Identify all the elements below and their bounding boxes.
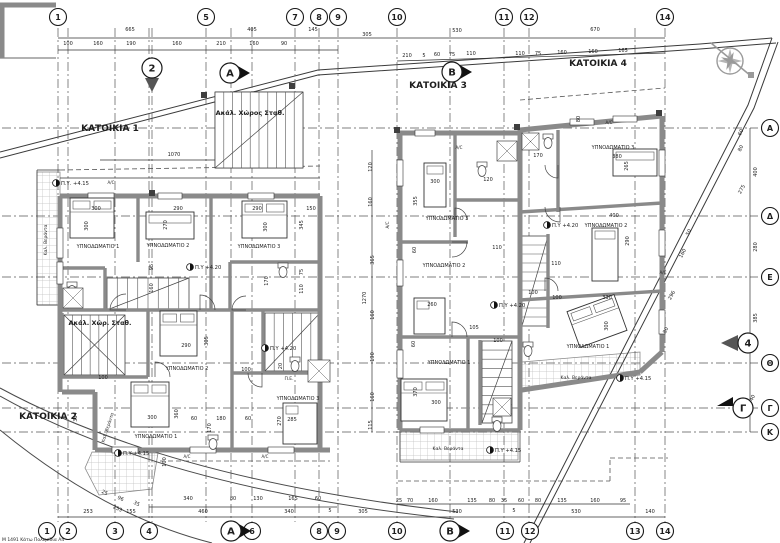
section-label: 2 [149,64,156,75]
section-label: B [446,527,454,538]
grid-bubble-label: 13 [629,527,640,536]
room-label: Καλ. Βεράντα [99,412,115,444]
door-swing [452,242,467,257]
dimension-text: 1070 [168,152,181,158]
dimension-text: 100 [241,367,251,373]
dimension-text: 190 [126,41,136,47]
window [570,119,594,125]
tiled-veranda [400,432,518,460]
dimension-text: 210 [216,41,226,47]
section-arrow [145,78,159,92]
dimension-text: 275 [737,184,747,195]
dimension-text: 110 [299,284,305,294]
door-swing [232,296,246,310]
grid-bubble-label: 10 [391,13,403,22]
bed [70,198,114,238]
dimension-text: 180 [216,416,226,422]
dimension-text: 160 [368,197,374,207]
room-label: Α/C [606,120,613,125]
wc-fixture [290,357,300,372]
bed [424,163,446,207]
pillow [149,215,191,223]
column [201,92,207,98]
bed [146,212,194,239]
pillow [427,166,443,174]
dimension-text: 80 [737,144,745,152]
dimension-text: 253 [112,504,123,513]
wc-bowl [524,346,532,357]
room-label: Ακάλ. Χώρ. Σταθ. [69,319,132,327]
room-label: Καλ. Βεράντα [433,445,464,452]
dimension-text: 130 [253,496,263,502]
pillow [73,201,90,209]
dimension-text: 160 [678,248,688,259]
interior-wall [520,203,662,212]
dimension-text: 90 [281,41,287,47]
section-label: A [227,527,235,538]
dimension-text: 300 [84,221,90,231]
dimension-text: 160 [249,41,259,47]
dimension-text: 300 [431,400,441,406]
level-marker [262,345,269,352]
level-marker [187,264,194,271]
room-label: ΥΠΝΟΔΩΜΑΤΙΟ 3 [276,396,320,402]
dimension-text: 100 [63,41,73,47]
dimension-text: 670 [590,27,600,33]
room-label: ΥΠΝΟΔΩΜΑΤΙΟ 2 [584,223,628,229]
dimension-text: 60 [412,247,418,253]
section-arrow [717,397,733,406]
dimension-text: 340 [284,509,294,515]
window [248,193,274,199]
window [268,447,294,453]
room-label: Ακάλ. Χώρος Σταθ. [216,109,285,117]
dimension-text: 160 [590,498,600,504]
section-marker-4 [721,333,758,353]
dimension-text: 160 [149,283,155,293]
dimension-text: 110 [492,245,502,251]
dimension-text: 60 [737,128,745,136]
dimension-text: 100 [98,375,108,381]
dimension-text: 405 [247,27,257,33]
dimension-text: 530 [571,509,581,515]
grid-bubble-label: 8 [316,13,322,22]
room-label: Α/C [660,270,667,275]
dimension-text: 5 [422,53,425,59]
dimension-text: 105 [469,325,479,331]
dimension-text: 360 [174,409,180,419]
dimension-text: 75 [449,52,455,58]
stair [522,236,548,326]
dimension-text: 365 [370,255,376,265]
grid-bubble-label: 11 [498,13,510,22]
window [57,262,63,284]
room-label: Καλ. Βεράντα [42,224,49,255]
shower [522,133,539,150]
dimension-text: 370 [413,387,419,397]
room-label: ΥΠΝΟΔΩΜΑΤΙΟ 2 [146,243,190,249]
dimension-text: 60 [191,416,197,422]
room-label: ΥΠΝΟΔΩΜΑΤΙΟ 1 [427,360,471,366]
grid-bubble-label: K [767,428,774,437]
dimension-text: 165 [618,48,628,54]
dimension-text: 270 [163,220,169,230]
door-swing [200,295,215,310]
grid-bubble-label: 10 [391,527,403,536]
room-label: Α/C [456,145,463,150]
dimension-text: 115 [368,420,374,430]
dimension-text: 60 [411,341,417,347]
dimension-text: 5 [328,508,331,514]
level-text: Π.Υ +4.20 [552,223,578,229]
dimension-text: 355 [413,196,419,206]
grid-bubble-label: 11 [499,527,511,536]
grid-bubble-label: 8 [316,527,322,536]
wc-fixture [477,162,487,177]
dimension-text: 80 [535,498,541,504]
dimension-text: 190 [370,352,376,362]
dimension-text: 100 [493,338,503,344]
pillow [267,204,285,212]
level-text: Π.Υ +4.20 [270,346,296,352]
dimension-text: 60 [518,498,524,504]
pillow [163,314,177,322]
exterior-wall [640,352,662,372]
room-label: Α/C [385,221,390,228]
room-label: Α/C [108,180,115,185]
pillow [134,385,148,393]
house-title: ΚΑΤΟΙΚΙΑ 2 [19,412,77,422]
window [659,230,665,256]
grid-bubble-label: 3 [112,527,118,536]
level-marker [487,447,494,454]
pillow [426,382,444,390]
grid-bubble-label: Θ [767,359,774,368]
wc-bowl [209,439,217,450]
window [415,130,435,136]
column [289,83,295,89]
floorplan-page: 6654051453055306701001601901602101609021… [0,0,780,543]
section-label: B [448,68,456,79]
dimension-text: 296 [667,290,677,301]
dimension-text: 330 [602,295,612,301]
dimension-text: 1270 [362,292,368,305]
shower [308,360,330,382]
dimension-text: 270 [277,416,283,426]
dimension-text: 135 [467,498,477,504]
dimension-text: 96 [116,495,124,503]
window [397,260,403,286]
dimension-text: 305 [358,509,368,515]
dimension-text: 260 [427,302,437,308]
bed-frame [567,295,627,348]
grid-bubble-label: Δ [767,212,774,221]
dimension-text: 25 [100,489,108,497]
dimension-text: 145 [308,27,318,33]
level-text: Π.Υ +4.15 [123,451,149,457]
level-marker [491,302,498,309]
room-label: ΥΠΝΟΔΩΜΑΤΙΟ 3 [591,145,635,151]
door-swing [248,373,262,387]
dimension-text: 290 [625,236,631,246]
grid-bubble-label: 9 [335,13,341,22]
dimension-text: 530 [452,28,462,34]
room-label: ΥΠΝΟΔΩΜΑΤΙΟ 3 [237,244,281,250]
column [514,124,520,130]
grid-bubble-label: 1 [44,527,50,536]
room-label: ΥΠΝΟΔΩΜΑΤΙΟ 3 [425,216,469,222]
grid-bubble-label: Γ [767,404,772,413]
section-label: Γ [740,404,747,415]
level-marker [617,375,624,382]
dimension-text: 160 [588,49,598,55]
dimension-text: 530 [452,509,462,515]
room-label: Α/C [262,454,269,459]
dimension-text: 120 [483,177,493,183]
plan-root: 6654051453055306701001601901602101609021… [0,5,779,543]
dimension-text: 120 [368,162,374,172]
dimension-text: 400 [609,213,619,219]
dimension-text: 95 [620,498,626,504]
shower [63,288,83,308]
level-marker [53,180,60,187]
dimension-text: 340 [183,496,193,502]
dimension-text: 80 [662,326,670,334]
floorplan-svg: 6654051453055306701001601901602101609021… [0,0,780,543]
dimension-text: 110 [466,51,476,57]
window [613,116,637,122]
level-text: Π.Υ +4.20 [499,303,525,309]
section-marker-B [440,521,470,541]
grid-bubble-label: 9 [334,527,340,536]
dimension-text: 20 [278,363,284,369]
bed [283,403,317,444]
dimension-text: 285 [287,417,297,423]
dimension-text: 300 [604,321,610,331]
dimension-text: 280 [753,242,759,252]
window [57,228,63,258]
house-title: ΚΑΤΟΙΚΙΑ 1 [81,124,139,134]
north-compass-icon [711,43,754,78]
room-label: Α/C [184,454,191,459]
dimension-text: 150 [306,206,316,212]
grid-bubble-label: E [767,273,772,282]
grid-bubble-label: A [767,124,774,133]
dimension-text: 135 [557,498,567,504]
level-marker [544,222,551,229]
wc-fixture [208,435,218,450]
window [158,193,182,199]
window [397,160,403,186]
grid-bubble-label: 14 [659,527,671,536]
shower [493,398,511,416]
column [656,110,662,116]
section-marker-A [220,63,250,83]
dimension-text: 265 [624,161,630,171]
house-title: ΚΑΤΟΙΚΙΑ 4 [569,59,627,69]
watermark-text: Μ 1491 Κάτω Πολεμίδια Απ [2,536,64,543]
dimension-text: 460 [198,509,208,515]
dimension-text: 165 [288,496,298,502]
dashed-line [520,88,665,100]
bed [567,295,627,348]
room-label: ΥΠΝΟΔΩΜΑΤΙΟ 2 [422,263,466,269]
wc-bowl [544,138,552,149]
level-text: Π.Υ. +4.15 [61,181,89,187]
grid-bubble-label: 5 [203,13,209,22]
dimension-text: 80 [230,496,236,502]
dimension-text: 100 [552,295,562,301]
room-label: ΥΠΝΟΔΩΜΑΤΙΟ 1 [76,244,120,250]
door-swing [452,322,467,337]
level-text: Π.Υ +4.15 [625,376,651,382]
section-label: 4 [745,339,752,350]
dimension-text: 290 [181,343,191,349]
dimension-text: 110 [515,51,525,57]
wc-bowl [279,267,287,278]
dimension-text: 80 [489,498,495,504]
dimension-text: 290 [173,206,183,212]
dimension-text: 300 [263,222,269,232]
dimension-text: 100 [162,457,168,467]
dimension-text: 300 [147,415,157,421]
shower [497,141,517,161]
level-text: Π.Υ +4.20 [195,265,221,271]
house-title: ΚΑΤΟΙΚΙΑ 3 [409,81,467,91]
level-marker [115,450,122,457]
pillow [152,385,166,393]
dimension-text: 400 [753,167,759,177]
stair [107,278,189,310]
grid-bubble-label: 4 [146,527,152,536]
column [149,190,155,196]
dimension-text: 210 [402,53,412,59]
grid-bubble-label: 12 [523,13,534,22]
dimension-text: 385 [753,313,759,323]
dimension-text: 665 [125,27,135,33]
section-arrow [721,335,738,351]
dimension-text: 160 [557,50,567,56]
window [659,150,665,176]
window [397,350,403,378]
grid-bubble-label: 14 [659,13,671,22]
dimension-text: 35 [132,500,140,508]
dimension-text: 60 [315,496,321,502]
dimension-text: 50 [685,228,693,236]
wc-bowl [291,361,299,372]
room-label: Π.Ε. [284,376,293,382]
grid-bubble-label: 7 [292,13,298,22]
window [420,427,444,433]
dimension-text: 305 [362,32,372,38]
column [394,127,400,133]
dimension-text: 100 [528,290,538,296]
dimension-text: 80 [576,116,582,122]
dimension-text: 253 [83,509,93,515]
stair [215,92,303,168]
door-swing [545,165,558,178]
dimension-text: 35 [501,498,507,504]
dimension-text: 110 [551,261,561,267]
dimension-text: 75 [535,51,541,57]
grid-bubble-label: 12 [524,527,535,536]
bed [592,228,618,281]
wc-fixture [278,263,288,278]
dimension-text: 160 [370,310,376,320]
level-text: Π.Υ +4.15 [495,448,521,454]
wc-fixture [523,342,533,357]
dimension-text: 305 [204,336,210,346]
dimension-text: 140 [645,509,655,515]
site-boundary-line [0,38,772,152]
room-label: ΥΠΝΟΔΩΜΑΤΙΟ 2 [165,366,209,372]
dimension-text: 170 [264,276,270,286]
dimension-text: 160 [428,498,438,504]
dimension-text: 160 [172,41,182,47]
dimension-text: 300 [91,206,101,212]
dimension-text: 70 [407,498,413,504]
dimension-text: 160 [93,41,103,47]
dimension-text: 170 [207,423,213,433]
dimension-text: 290 [252,206,262,212]
wc-bowl [493,421,501,432]
dimension-text: 300 [430,179,440,185]
wc-fixture [492,417,502,432]
dimension-text: 25 [396,498,402,504]
dimension-text: 95 [149,264,155,270]
grid-bubble-label: 2 [65,527,71,536]
pillow [181,314,195,322]
dimension-text: 5 [512,508,515,514]
dimension-text: 380 [612,154,622,160]
dimension-text: 170 [533,153,543,159]
compass-needle-tip [748,72,754,78]
grid-bubble-label: 1 [55,13,61,22]
room-label: ΥΠΝΟΔΩΜΑΤΙΟ 1 [566,344,610,350]
wc-fixture [543,134,553,149]
dimension-text: 75 [299,269,305,275]
section-label: A [226,69,234,80]
dimension-text: 160 [370,392,376,402]
pillow [595,231,615,239]
dimension-text: 345 [299,220,305,230]
dimension-text: 60 [434,52,440,58]
room-label: Καλ. Βεράντα [561,374,592,381]
dimension-text: 60 [245,416,251,422]
wc-bowl [478,166,486,177]
bed [160,311,197,356]
pillow [286,406,298,414]
section-marker-Γ [717,397,753,418]
dimension-text: 155 [126,509,136,515]
room-label: ΥΠΝΟΔΩΜΑΤΙΟ 1 [134,434,178,440]
